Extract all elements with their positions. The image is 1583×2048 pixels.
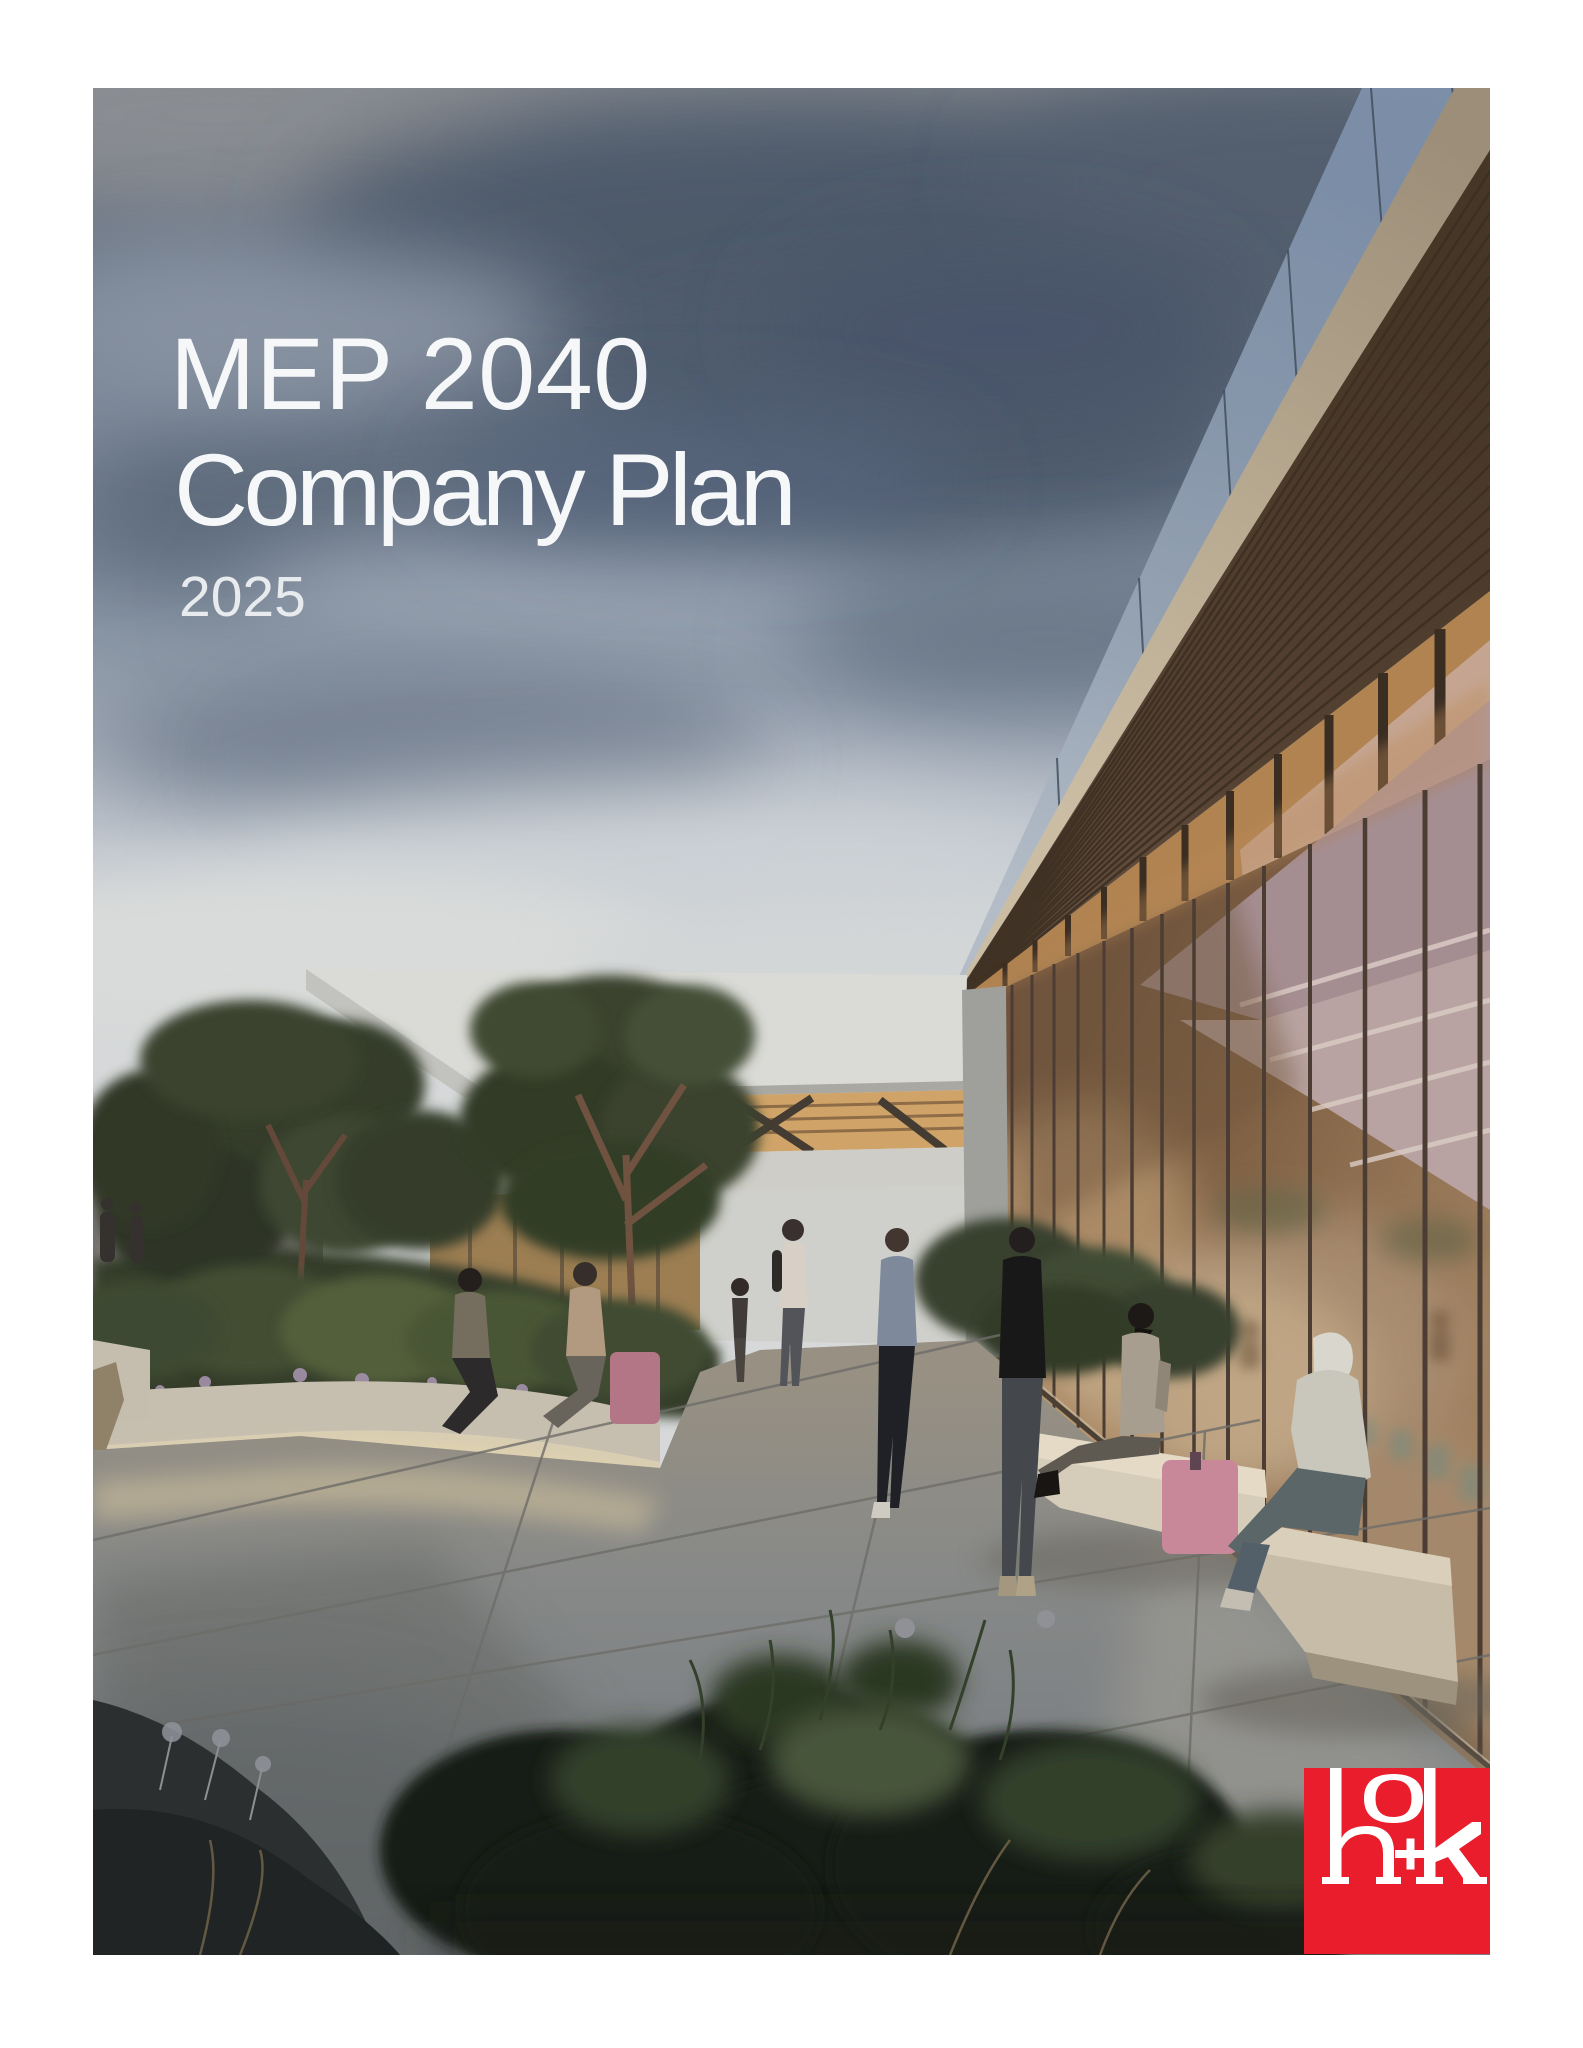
svg-text:MEP 2040: MEP 2040 <box>170 316 651 431</box>
svg-text:2025: 2025 <box>179 565 306 629</box>
svg-text:Company Plan: Company Plan <box>174 432 792 547</box>
